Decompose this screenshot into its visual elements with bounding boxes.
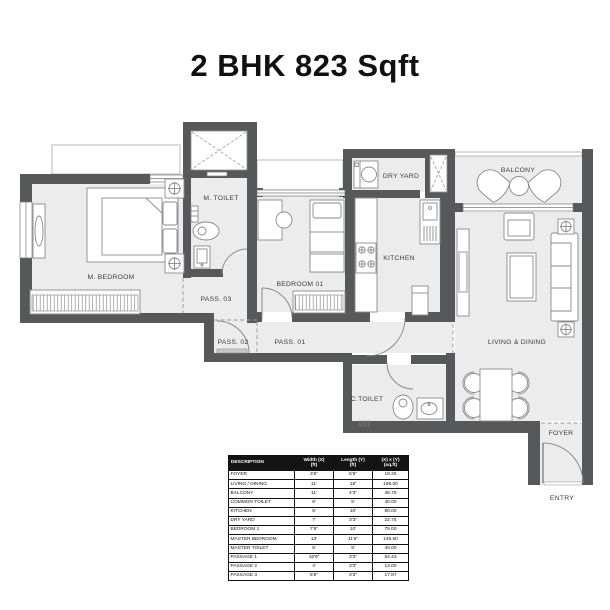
table-header-row: DESCRIPTION Width (X) (ft) Length (Y) (f…: [229, 456, 409, 471]
room-label-bedroom-01: BEDROOM 01: [276, 281, 323, 288]
table-row: PASSAGE 116'9"3'3"54.43: [229, 553, 409, 562]
room-label-pass-03: PASS. 03: [201, 296, 232, 303]
col-header-area: (X) x (Y) (sq.ft): [373, 456, 409, 471]
table-row: PASSAGE 35'6"3'3"17.87: [229, 572, 409, 581]
room-label-kitchen: KITCHEN: [383, 255, 415, 262]
kitchen-cabinet: [412, 286, 428, 315]
col-header-description: DESCRIPTION: [229, 456, 295, 471]
towel-shelf: [191, 206, 198, 222]
col-header-width: Width (X) (ft): [295, 456, 334, 471]
room-label-balcony: BALCONY: [501, 167, 535, 174]
pillow: [163, 202, 177, 225]
pillow: [163, 229, 177, 253]
dry-yard-fixtures: [354, 161, 378, 188]
room-label-m-toilet: M. TOILET: [203, 195, 238, 202]
room-label-foyer: FOYER: [549, 430, 574, 437]
col-header-length: Length (Y) (ft): [334, 456, 373, 471]
pillow: [313, 203, 341, 218]
table-row: FOYER3'6"5'6"19.25: [229, 471, 409, 480]
floor-plan-page: 2 BHK 823 Sqft: [0, 0, 610, 610]
round-table: [510, 177, 529, 196]
table-row: LIVING / DINING11'18'198.00: [229, 480, 409, 489]
table-row: COMMON TOILET8'5'40.00: [229, 498, 409, 507]
room-label-living-dining: LIVING & DINING: [488, 339, 546, 346]
table-row: MASTER TOILET5'8'40.00: [229, 544, 409, 553]
table-row: BEDROOM 17'6"10'75.00: [229, 526, 409, 535]
area-statement-table: DESCRIPTION Width (X) (ft) Length (Y) (f…: [228, 455, 409, 581]
room-label-entry: ENTRY: [550, 495, 574, 502]
room-label-m-bedroom: M. BEDROOM: [87, 274, 134, 281]
dining-table: [480, 369, 512, 421]
table-row: KITCHEN8'10'80.00: [229, 507, 409, 516]
chair: [276, 212, 292, 228]
sofa: [551, 233, 578, 321]
table-row: BALCONY11'4'3"46.75: [229, 489, 409, 498]
table-row: DRY YARD7'3'3"22.75: [229, 516, 409, 525]
room-label-pass-02: PASS. 02: [218, 339, 249, 346]
room-label-pass-01: PASS. 01: [275, 339, 306, 346]
room-label-c-toilet: C.TOILET: [351, 396, 383, 403]
room-label-dry-yard: DRY YARD: [383, 173, 419, 180]
table-row: PASSAGE 24'3'3"13.00: [229, 562, 409, 571]
table-row: MASTER BEDROOM13'11'6"149.50: [229, 535, 409, 544]
